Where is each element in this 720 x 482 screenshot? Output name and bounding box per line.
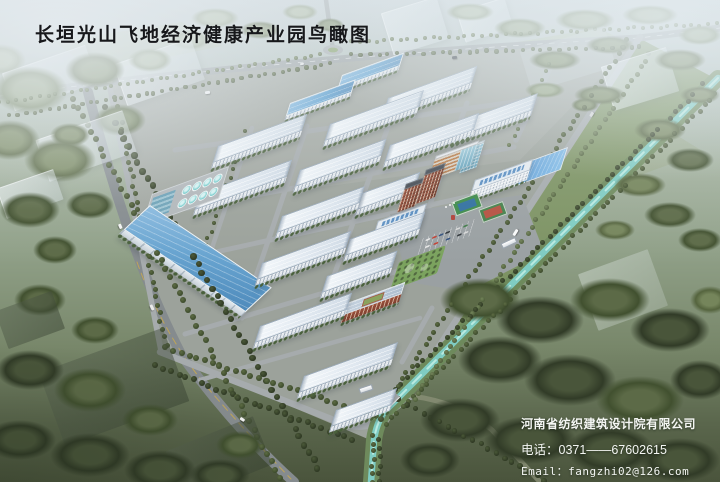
email-address: fangzhi02@126.com: [568, 465, 689, 478]
roadside-tree: [526, 280, 531, 285]
roadside-tree: [85, 88, 89, 92]
blue-warehouse-building: [116, 205, 271, 319]
roadside-tree: [155, 303, 160, 308]
roadside-tree: [663, 143, 668, 148]
roadside-tree: [314, 465, 320, 471]
roadside-tree: [494, 450, 500, 456]
roadside-tree: [518, 200, 523, 205]
roadside-tree: [698, 109, 703, 114]
roadside-tree: [462, 325, 467, 330]
roadside-tree: [441, 365, 446, 370]
roadside-tree: [210, 354, 216, 360]
vehicle: [452, 56, 457, 59]
roadside-tree: [544, 69, 548, 73]
phone-line: 电话：0371——67602615: [521, 439, 696, 458]
roadside-tree: [428, 353, 433, 358]
roadside-tree: [193, 355, 199, 361]
roadside-tree: [569, 29, 573, 33]
roadside-tree: [255, 364, 261, 370]
roadside-tree: [605, 200, 610, 205]
roadside-tree: [557, 138, 562, 143]
plaza-decoration: [449, 204, 451, 206]
roadside-tree: [678, 104, 683, 109]
roadside-tree: [185, 307, 191, 313]
roadside-tree: [446, 424, 452, 430]
roadside-tree: [495, 34, 499, 38]
roadside-tree: [504, 48, 508, 52]
roadside-tree: [611, 106, 616, 111]
roadside-tree: [318, 425, 324, 431]
roadside-tree: [295, 433, 301, 439]
tree-cluster: [33, 236, 77, 264]
roadside-tree: [225, 78, 229, 82]
roadside-tree: [570, 212, 575, 217]
roadside-tree: [448, 344, 453, 349]
roadside-tree: [405, 375, 410, 380]
roadside-tree: [605, 177, 610, 182]
roadside-tree: [512, 250, 517, 255]
roadside-tree: [703, 102, 708, 107]
parked-car: [425, 238, 430, 242]
roadside-tree: [401, 404, 406, 409]
roadside-tree: [370, 471, 375, 476]
roadside-tree: [134, 159, 140, 165]
roadside-tree: [159, 76, 163, 80]
scenery-layer: [0, 0, 720, 482]
roadside-tree: [566, 240, 571, 245]
roadside-tree: [207, 81, 211, 85]
roadside-tree: [172, 283, 178, 289]
ghost-building: [381, 0, 449, 56]
roadside-tree: [571, 119, 576, 124]
roadside-tree: [223, 309, 229, 315]
roadside-tree: [174, 74, 178, 78]
roadside-tree: [491, 240, 496, 245]
roadside-tree: [274, 409, 280, 415]
parked-car: [432, 236, 437, 240]
roadside-tree: [266, 405, 272, 411]
roadside-tree: [420, 358, 425, 363]
roadside-tree: [593, 189, 598, 194]
tree-cluster: [634, 118, 686, 142]
roadside-tree: [369, 464, 374, 469]
roadside-tree: [561, 245, 566, 250]
roadside-tree: [608, 27, 612, 31]
roadside-tree: [548, 257, 553, 262]
roadside-tree: [215, 68, 219, 72]
roadside-tree: [588, 216, 593, 221]
roadside-tree: [650, 154, 655, 159]
vehicle: [205, 91, 210, 94]
tree-cluster: [678, 228, 720, 252]
roadside-tree: [519, 32, 523, 36]
roadside-tree: [615, 165, 620, 170]
roadside-tree: [543, 261, 548, 266]
roadside-tree: [376, 471, 381, 476]
roadside-tree: [438, 358, 443, 363]
roadside-tree: [268, 387, 274, 393]
roadside-tree: [231, 167, 235, 171]
roadside-tree: [94, 86, 98, 90]
roadside-tree: [201, 83, 205, 87]
roadside-tree: [296, 417, 302, 423]
roadside-tree: [575, 113, 580, 118]
roadside-tree: [270, 380, 276, 386]
roadside-tree: [389, 415, 394, 420]
roadside-tree: [378, 454, 383, 459]
roadside-tree: [673, 109, 678, 114]
roadside-tree: [513, 134, 517, 138]
roadside-tree: [162, 266, 168, 272]
roadside-tree: [372, 457, 377, 462]
roadside-tree: [421, 52, 425, 56]
roadside-tree: [145, 91, 149, 95]
roadside-tree: [236, 332, 242, 338]
tree-cluster: [54, 368, 126, 412]
roadside-tree: [674, 23, 678, 27]
roadside-tree: [498, 228, 503, 233]
roadside-tree: [630, 45, 634, 49]
roadside-tree: [597, 125, 602, 130]
roadside-tree: [494, 234, 499, 239]
roadside-tree: [128, 167, 133, 172]
tree-cluster: [595, 220, 635, 240]
roadside-tree: [551, 29, 555, 33]
parking-lot: [418, 219, 475, 255]
roadside-tree: [610, 46, 614, 50]
roadside-tree: [643, 59, 648, 64]
roadside-tree: [685, 119, 690, 124]
roadside-tree: [277, 475, 283, 481]
roadside-tree: [526, 186, 531, 191]
roadside-tree: [33, 111, 37, 115]
roadside-tree: [210, 230, 214, 234]
roadside-tree: [152, 362, 158, 368]
blue-shed-building: [284, 79, 356, 123]
tree-cluster: [622, 5, 678, 25]
roadside-tree: [516, 127, 520, 131]
roadside-tree: [575, 205, 580, 210]
roadside-tree: [53, 92, 57, 96]
roadside-tree: [257, 403, 263, 409]
roadside-tree: [452, 428, 458, 434]
parked-car: [433, 242, 438, 246]
roadside-tree: [124, 193, 130, 199]
roadside-tree: [621, 45, 626, 50]
roadside-tree: [153, 287, 158, 292]
roadside-tree: [131, 174, 136, 179]
tennis-court: [478, 201, 507, 223]
tree-cluster: [666, 148, 714, 172]
roadside-tree: [447, 35, 451, 39]
roadside-tree: [214, 214, 218, 218]
birdseye-render: 长垣光山飞地经济健康产业园鸟瞰图 河南省纺织建筑设计院有限公司 电话：0371—…: [0, 0, 720, 482]
tree-cluster: [644, 202, 696, 228]
vehicle: [118, 223, 122, 229]
roadside-tree: [209, 286, 215, 292]
roadside-tree: [198, 330, 204, 336]
roadside-tree: [441, 316, 446, 321]
roadside-tree: [371, 442, 376, 447]
roadside-tree: [433, 347, 438, 352]
tree-cluster: [400, 442, 460, 478]
roadside-tree: [116, 177, 122, 183]
roadside-tree: [589, 139, 594, 144]
roadside-tree: [151, 91, 155, 95]
roadside-tree: [167, 274, 173, 280]
roadside-tree: [434, 364, 439, 369]
credits: 河南省纺织建筑设计院有限公司 电话：0371——67602615 Email：f…: [521, 415, 696, 479]
roadside-tree: [570, 233, 575, 238]
roadside-tree: [243, 397, 249, 403]
roadside-tree: [309, 54, 313, 58]
roadside-tree: [221, 370, 227, 376]
roadside-tree: [686, 99, 691, 104]
roadside-tree: [216, 363, 222, 369]
roadside-tree: [535, 245, 540, 250]
roadside-tree: [429, 375, 434, 380]
roadside-tree: [62, 92, 66, 96]
roadside-tree: [118, 82, 122, 86]
roadside-tree: [545, 30, 549, 34]
roadside-tree: [253, 62, 257, 66]
tree-cluster: [216, 431, 264, 459]
roadside-tree: [183, 85, 187, 89]
factory-building: [210, 114, 308, 173]
roadside-tree: [526, 231, 531, 236]
roadside-tree: [431, 330, 436, 335]
tree-cluster: [0, 192, 60, 228]
roadside-tree: [306, 449, 312, 455]
roadside-tree: [473, 330, 478, 335]
roadside-tree: [375, 40, 379, 44]
roadside-tree: [521, 285, 526, 290]
roadside-tree: [149, 270, 154, 275]
roadside-tree: [618, 188, 623, 193]
roadside-tree: [221, 68, 225, 72]
roadside-tree: [551, 192, 556, 197]
roadside-tree: [277, 58, 281, 62]
roadside-tree: [479, 441, 485, 447]
roadside-tree: [519, 239, 524, 244]
roadside-tree: [153, 294, 158, 299]
roadside-tree: [349, 52, 353, 56]
roadside-tree: [151, 280, 156, 285]
email-line: Email：fangzhi02@126.com: [521, 463, 696, 479]
roadside-tree: [130, 184, 135, 189]
roadside-tree: [248, 74, 252, 78]
roadside-tree: [511, 49, 515, 53]
roadside-tree: [358, 53, 362, 57]
roadside-tree: [118, 186, 124, 192]
roadside-tree: [241, 411, 247, 417]
factory-building: [252, 293, 353, 353]
company-name: 河南省纺织建筑设计院有限公司: [521, 415, 696, 432]
roadside-tree: [145, 175, 151, 181]
roadside-tree: [263, 72, 267, 76]
roadside-tree: [287, 68, 291, 72]
roadside-tree: [169, 87, 173, 91]
roadside-tree: [221, 389, 227, 395]
roadside-tree: [206, 70, 210, 74]
roadside-tree: [455, 325, 460, 330]
blue-warehouse-whroof: [124, 205, 272, 312]
roadside-tree: [262, 62, 266, 66]
roadside-tree: [410, 364, 415, 369]
roadside-tree: [208, 347, 214, 353]
roadside-tree: [452, 338, 457, 343]
roadside-tree: [632, 25, 636, 29]
roadside-tree: [530, 250, 535, 255]
roadside-tree: [7, 113, 11, 117]
roadside-tree: [540, 211, 545, 216]
roadside-tree: [215, 293, 221, 299]
roadside-tree: [385, 52, 389, 56]
roadside-tree: [328, 61, 332, 65]
roadside-tree: [610, 172, 615, 177]
roadside-tree: [601, 47, 605, 51]
roadside-tree: [438, 342, 443, 347]
roadside-tree: [150, 182, 156, 188]
roadside-tree: [665, 24, 669, 28]
roadside-tree: [508, 214, 513, 219]
roadside-tree: [575, 158, 580, 163]
roadside-tree: [640, 166, 645, 171]
roadside-tree: [518, 262, 523, 267]
roadside-tree: [468, 50, 472, 54]
plaza-decoration: [445, 206, 447, 208]
tree-cluster: [122, 404, 178, 436]
roadside-tree: [509, 459, 515, 465]
roadside-tree: [106, 162, 112, 168]
roadside-tree: [223, 378, 229, 384]
roadside-tree: [247, 373, 253, 379]
roadside-tree: [638, 144, 643, 149]
roadside-tree: [239, 403, 245, 409]
roadside-tree: [450, 330, 455, 335]
parked-car: [463, 224, 468, 228]
roadside-tree: [451, 354, 456, 359]
roadside-tree: [668, 138, 673, 143]
roadside-tree: [522, 194, 527, 199]
roadside-tree: [294, 56, 298, 60]
roadside-tree: [561, 132, 566, 137]
email-label: Email：: [521, 465, 568, 478]
roadside-tree: [103, 86, 107, 90]
roadside-tree: [607, 65, 612, 70]
roadside-tree: [405, 52, 409, 56]
roadside-tree: [613, 59, 618, 64]
roadside-tree: [445, 335, 450, 340]
roadside-tree: [377, 446, 382, 451]
roadside-tree: [480, 34, 484, 38]
roadside-tree: [431, 51, 435, 55]
roadside-tree: [230, 66, 234, 70]
phone-number: 0371——67602615: [559, 443, 667, 457]
roadside-tree: [588, 194, 593, 199]
roadside-tree: [598, 184, 603, 189]
roadside-tree: [417, 350, 422, 355]
roadside-tree: [382, 38, 386, 42]
roadside-tree: [257, 74, 261, 78]
roadside-tree: [182, 374, 188, 380]
tree-cluster: [282, 4, 318, 20]
roadside-tree: [272, 72, 276, 76]
parked-car: [455, 227, 460, 231]
roadside-tree: [394, 411, 399, 416]
roadside-tree: [525, 257, 530, 262]
roadside-tree: [158, 310, 163, 315]
roadside-tree: [279, 403, 285, 409]
tree-cluster: [529, 50, 581, 70]
roadside-tree: [231, 78, 235, 82]
roadside-tree: [700, 81, 705, 86]
roadside-tree: [565, 217, 570, 222]
roadside-tree: [384, 422, 389, 427]
roadside-tree: [111, 169, 117, 175]
roadside-tree: [400, 376, 405, 381]
roadside-tree: [192, 85, 196, 89]
roadside-tree: [304, 65, 308, 69]
roadside-tree: [196, 261, 202, 267]
vehicle: [149, 304, 154, 311]
roadside-tree: [489, 33, 493, 37]
roadside-tree: [205, 236, 209, 240]
roadside-tree: [378, 53, 382, 57]
roadside-tree: [626, 26, 630, 30]
roadside-tree: [80, 102, 84, 106]
roadside-tree: [456, 36, 460, 40]
roadside-tree: [318, 52, 322, 56]
roadside-tree: [119, 96, 123, 100]
roadside-tree: [449, 302, 454, 307]
roadside-tree: [324, 398, 330, 404]
roadside-tree: [212, 221, 216, 225]
roadside-tree: [274, 394, 280, 400]
roadside-tree: [133, 191, 138, 196]
roadside-tree: [131, 152, 137, 158]
tree-cluster: [65, 52, 125, 88]
page-title: 长垣光山飞地经济健康产业园鸟瞰图: [35, 20, 371, 47]
roadside-tree: [259, 444, 265, 450]
roadside-tree: [217, 300, 223, 306]
parked-car: [457, 233, 462, 237]
roadside-tree: [175, 87, 179, 91]
roadside-tree: [191, 376, 197, 382]
roadside-tree: [310, 423, 316, 429]
roadside-tree: [470, 437, 476, 443]
plaza-decoration: [451, 215, 455, 220]
roadside-tree: [113, 98, 117, 102]
roadside-tree: [147, 254, 152, 259]
roadside-tree: [319, 63, 323, 67]
roadside-tree: [505, 220, 510, 225]
basketball-court: [451, 193, 482, 217]
roadside-tree: [650, 25, 654, 29]
roadside-tree: [416, 391, 421, 396]
roadside-tree: [413, 406, 419, 412]
roadside-tree: [599, 79, 604, 84]
roadside-tree: [75, 105, 81, 111]
roadside-tree: [124, 151, 129, 156]
roadside-tree: [508, 258, 513, 263]
roadside-tree: [512, 206, 517, 211]
roadside-tree: [475, 49, 479, 53]
roadside-tree: [568, 126, 573, 131]
roadside-tree: [715, 21, 719, 25]
roadside-tree: [198, 270, 204, 276]
roadside-tree: [530, 225, 535, 230]
